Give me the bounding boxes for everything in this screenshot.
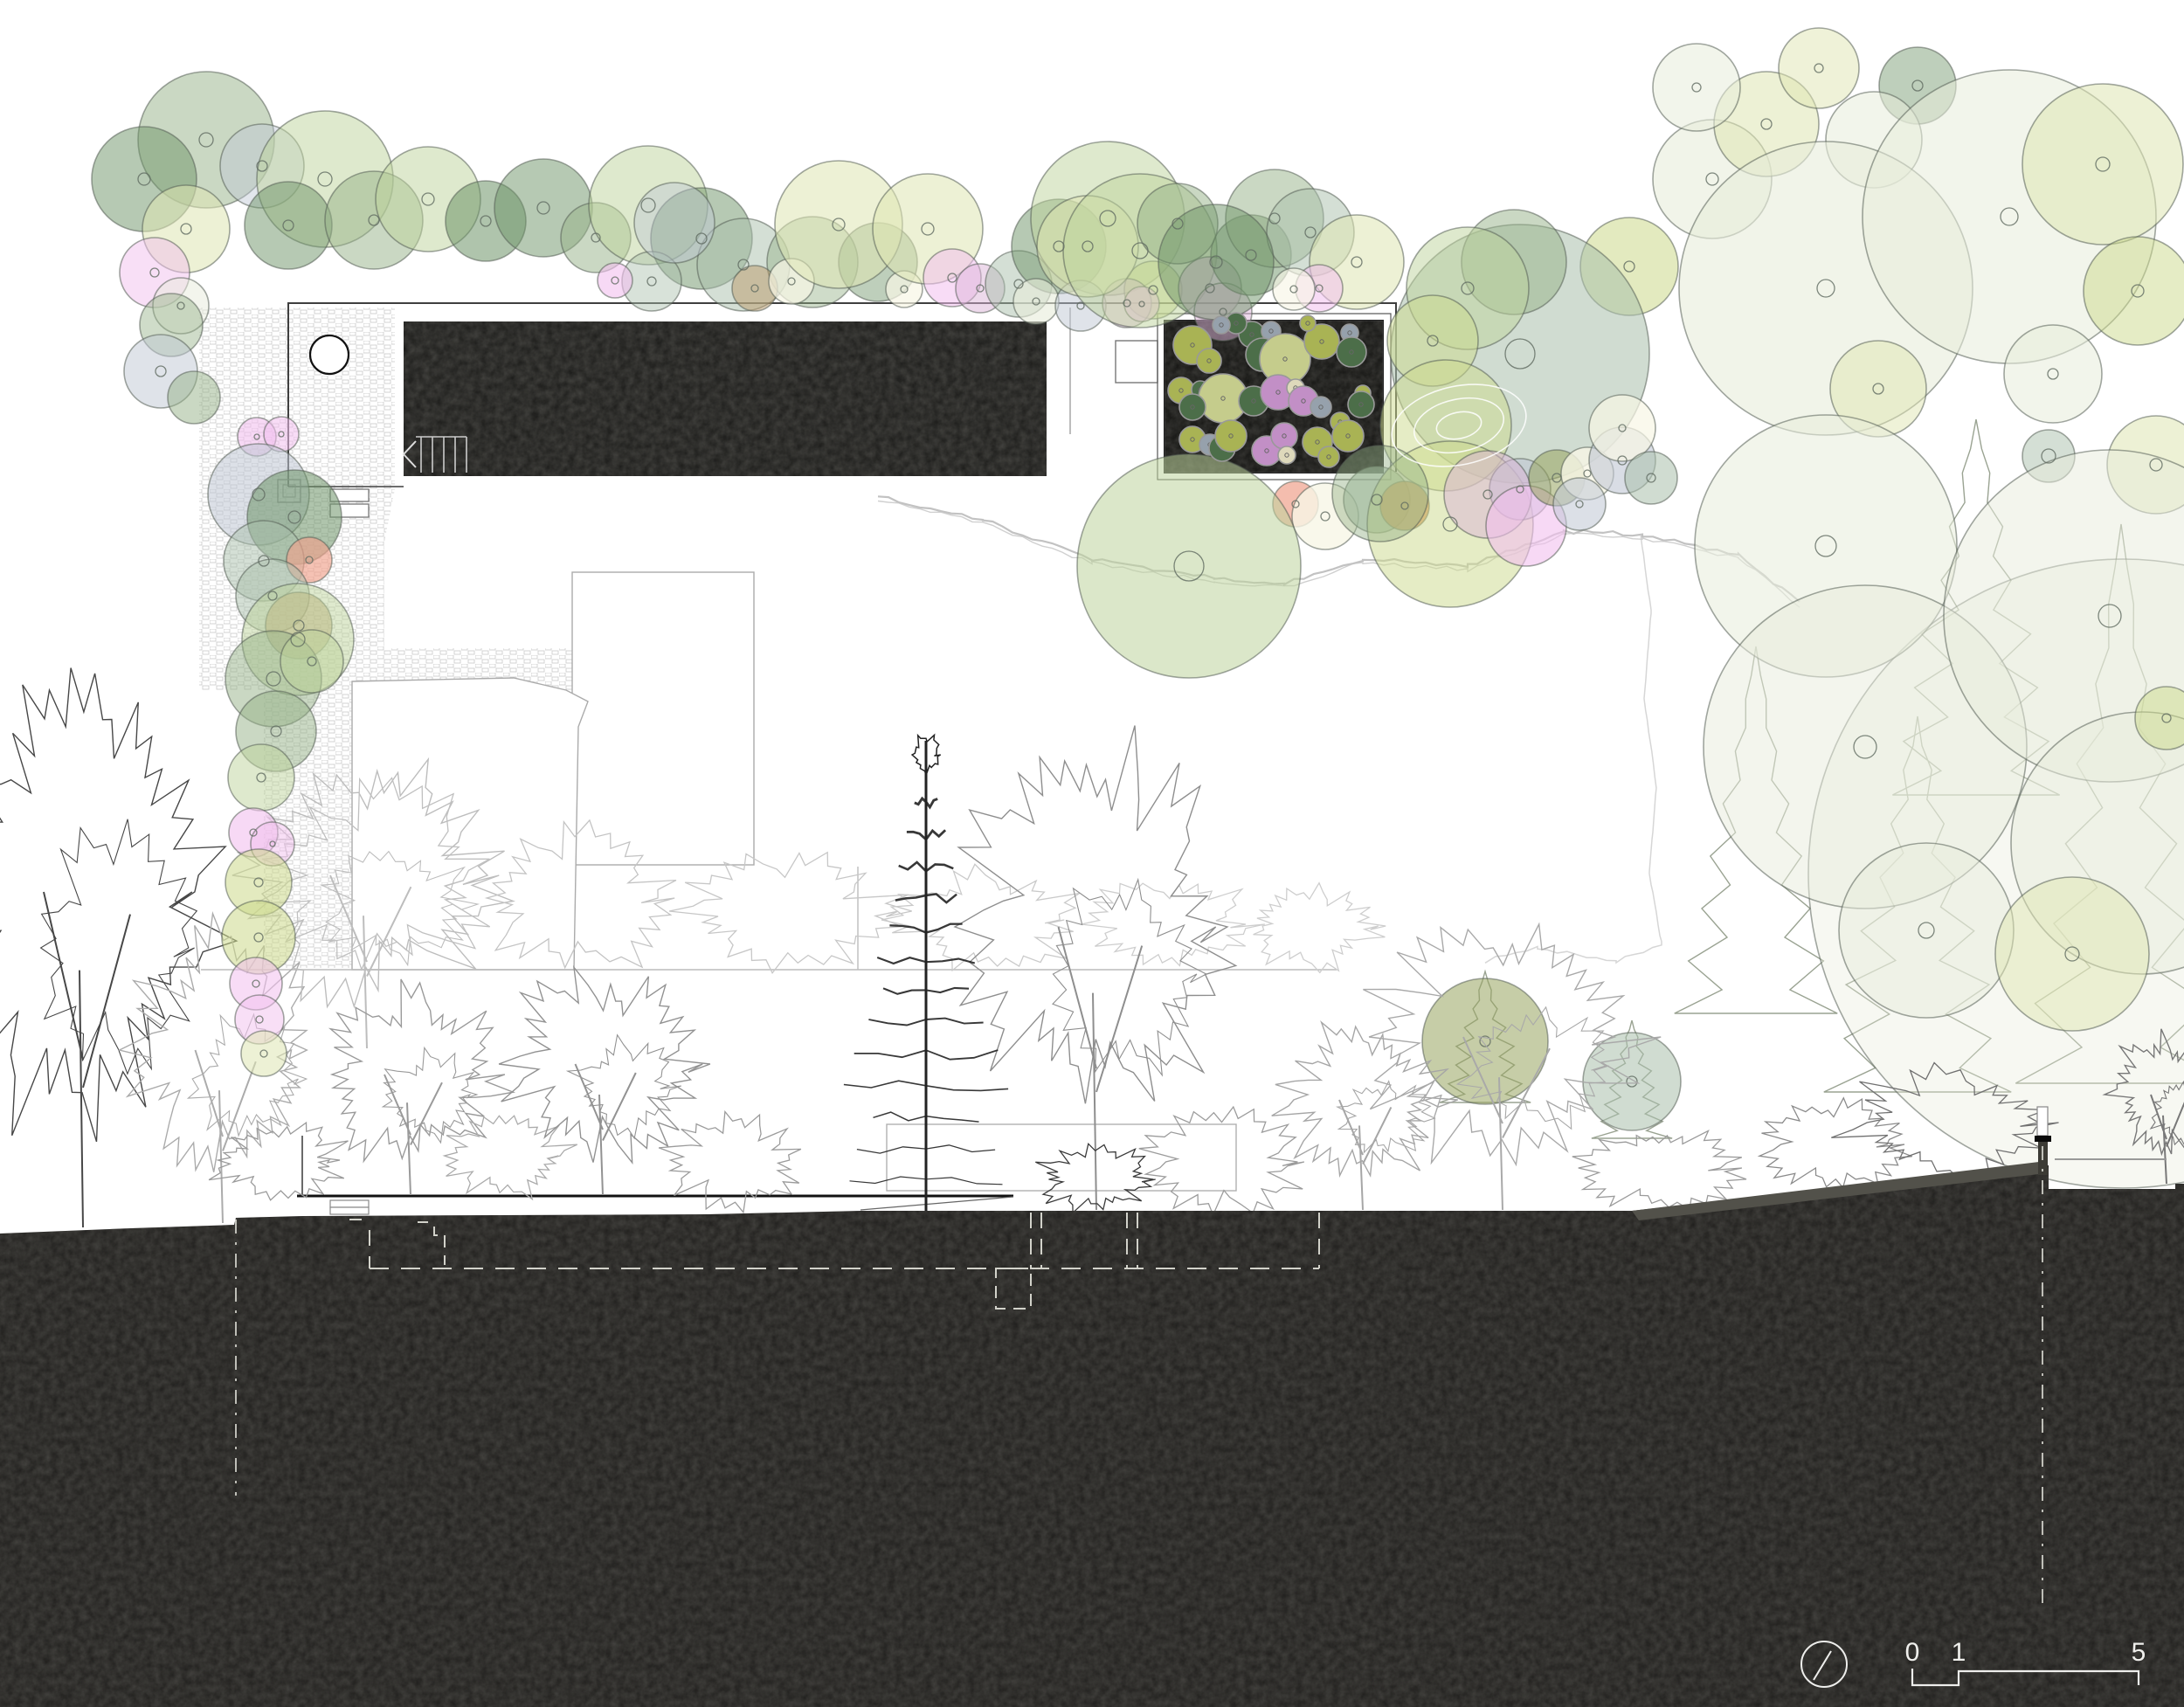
scale-label-1: 1 [1952, 1638, 1966, 1667]
existing-tree-trunk-circle [310, 335, 349, 374]
scale-label-5: 5 [2132, 1638, 2146, 1667]
scale-label-0: 0 [1905, 1638, 1920, 1667]
landscape-drawing-canvas: 0 1 5 [0, 0, 2184, 1707]
tree-canopy-circles [92, 28, 2184, 1188]
building-footprint [404, 308, 1158, 476]
generated-artwork [0, 28, 2184, 1707]
gravel-path-scribble [878, 496, 1800, 963]
drawing-svg: 0 1 5 [0, 0, 2184, 1707]
section-ground-mass [0, 1162, 2184, 1707]
